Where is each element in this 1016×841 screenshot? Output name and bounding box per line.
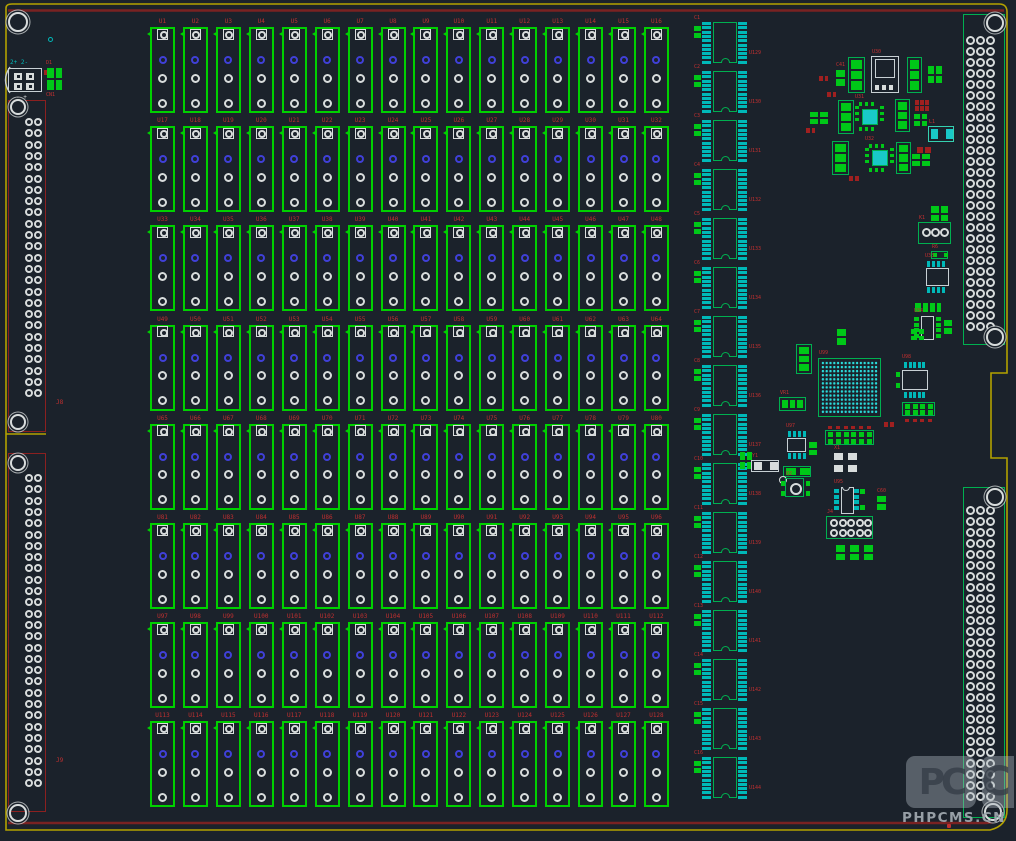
- soic8h-footprint[interactable]: U97: [786, 431, 807, 459]
- relay-coil-pad: [159, 254, 167, 262]
- relay-pad: [191, 297, 200, 306]
- relay-footprint[interactable]: [413, 27, 438, 113]
- sot3v-footprint[interactable]: [838, 100, 854, 134]
- relay-footprint[interactable]: [216, 622, 241, 708]
- relay-pin1-pad: [223, 128, 234, 139]
- relay-footprint[interactable]: [545, 126, 570, 212]
- relay-footprint[interactable]: [282, 622, 307, 708]
- pads2x2-footprint[interactable]: [810, 112, 828, 124]
- relay-refdes: U92: [519, 514, 530, 521]
- pad: [828, 439, 833, 444]
- relay-refdes: U17: [157, 117, 168, 124]
- pad: [925, 147, 931, 153]
- relay-footprint[interactable]: [611, 325, 636, 411]
- relay-pad: [586, 793, 595, 802]
- relay-pin1-pad: [157, 525, 168, 536]
- pad: [896, 383, 900, 388]
- relay-footprint[interactable]: [479, 721, 504, 807]
- relay-footprint[interactable]: [150, 225, 175, 311]
- qfp-footprint[interactable]: U98: [902, 362, 928, 398]
- ic-footprint[interactable]: C14U142: [694, 659, 764, 700]
- relay-footprint[interactable]: [249, 126, 274, 212]
- relay-pad: [652, 570, 661, 579]
- relay-footprint[interactable]: [545, 622, 570, 708]
- relay-footprint[interactable]: [479, 325, 504, 411]
- relay-footprint[interactable]: [150, 523, 175, 609]
- pad: [837, 338, 846, 345]
- relay-footprint[interactable]: [348, 225, 373, 311]
- relay-footprint[interactable]: [413, 225, 438, 311]
- pad: [837, 329, 846, 336]
- ic-pin: [702, 325, 711, 328]
- pads2x2-footprint[interactable]: [928, 66, 942, 83]
- ic-footprint[interactable]: C7U135: [694, 316, 764, 357]
- red2h-footprint[interactable]: [917, 147, 931, 153]
- pads2x2-footprint[interactable]: [911, 329, 924, 340]
- relay-footprint[interactable]: [644, 523, 669, 609]
- relay-footprint[interactable]: [644, 721, 669, 807]
- relay-pad: [421, 173, 430, 182]
- relay-footprint[interactable]: [446, 225, 471, 311]
- relay-footprint[interactable]: [183, 225, 208, 311]
- relay-coil-pad: [356, 552, 364, 560]
- relay-footprint[interactable]: [479, 622, 504, 708]
- capacitor-pad: [694, 271, 701, 276]
- pads2v-footprint[interactable]: [809, 442, 817, 455]
- ic-pin: [702, 382, 711, 385]
- mounting-hole: [986, 328, 1004, 346]
- relay-footprint[interactable]: [150, 622, 175, 708]
- red2h-footprint[interactable]: [827, 92, 836, 97]
- relay-pad: [586, 297, 595, 306]
- relay-footprint[interactable]: [512, 721, 537, 807]
- relay-footprint[interactable]: [249, 27, 274, 113]
- relay-footprint[interactable]: [249, 721, 274, 807]
- ic-footprint[interactable]: C12U140: [694, 561, 764, 602]
- relay-footprint[interactable]: [249, 424, 274, 510]
- relay-pad: [421, 371, 430, 380]
- ic-pin: [738, 110, 747, 113]
- relay-refdes: U38: [322, 216, 333, 223]
- relay-footprint[interactable]: [578, 27, 603, 113]
- conn3c-footprint[interactable]: K1: [918, 222, 951, 244]
- relay-footprint[interactable]: [578, 622, 603, 708]
- relay-footprint[interactable]: [446, 523, 471, 609]
- ic-pin: [738, 632, 747, 635]
- relay-pad: [356, 198, 365, 207]
- relay-footprint[interactable]: [644, 424, 669, 510]
- relay-footprint[interactable]: [183, 325, 208, 411]
- relay-pad: [586, 198, 595, 207]
- relay-refdes: U117: [287, 712, 301, 719]
- ic-notch: [721, 597, 730, 602]
- pad: [898, 121, 907, 129]
- relay-coil-pad: [455, 651, 463, 659]
- pads2v-footprint[interactable]: [850, 545, 859, 560]
- relay-footprint[interactable]: [479, 27, 504, 113]
- relay-footprint[interactable]: [545, 721, 570, 807]
- relay-footprint[interactable]: [183, 424, 208, 510]
- relay-footprint[interactable]: [545, 225, 570, 311]
- relay-footprint[interactable]: [183, 721, 208, 807]
- relay-footprint[interactable]: [282, 721, 307, 807]
- relay-footprint[interactable]: [381, 126, 406, 212]
- relay-footprint[interactable]: [348, 424, 373, 510]
- soic8gv-footprint[interactable]: U95: [834, 487, 865, 514]
- ic-pin: [702, 182, 711, 185]
- relay-footprint[interactable]: [216, 27, 241, 113]
- sot3v-footprint[interactable]: [907, 57, 922, 93]
- relay-footprint[interactable]: [183, 622, 208, 708]
- relay-footprint[interactable]: [381, 622, 406, 708]
- relay-pad: [389, 669, 398, 678]
- capacitor-pad: [694, 75, 701, 80]
- relay-footprint[interactable]: [315, 126, 340, 212]
- dpak-footprint[interactable]: U30: [871, 56, 899, 93]
- relay-footprint[interactable]: [381, 721, 406, 807]
- relay-footprint[interactable]: [512, 424, 537, 510]
- relay-footprint[interactable]: [446, 325, 471, 411]
- relay-footprint[interactable]: [216, 325, 241, 411]
- relay-footprint[interactable]: [216, 721, 241, 807]
- relay-pin1-hole: [324, 229, 332, 237]
- relay-footprint[interactable]: [545, 325, 570, 411]
- red2h-footprint[interactable]: [819, 76, 828, 81]
- ic-footprint[interactable]: C6U134: [694, 267, 764, 308]
- relay-pin1-pad: [585, 29, 596, 40]
- relay-pin1-hole: [489, 428, 497, 436]
- pad: [928, 76, 934, 84]
- relay-footprint[interactable]: [578, 126, 603, 212]
- ic-pin: [738, 619, 747, 622]
- relay-pad: [652, 595, 661, 604]
- ic-footprint[interactable]: C9U137: [694, 414, 764, 455]
- relay-footprint[interactable]: [282, 27, 307, 113]
- relay-footprint[interactable]: [315, 225, 340, 311]
- relay-footprint[interactable]: [216, 523, 241, 609]
- ic-footprint[interactable]: C5U133: [694, 218, 764, 259]
- ic-pin: [702, 101, 711, 104]
- relay-footprint[interactable]: [381, 523, 406, 609]
- ic-footprint[interactable]: C16U144: [694, 757, 764, 798]
- relay-footprint[interactable]: [249, 325, 274, 411]
- relay-footprint[interactable]: [183, 126, 208, 212]
- relay-footprint[interactable]: [282, 523, 307, 609]
- red3x2-footprint[interactable]: [915, 100, 930, 112]
- relay-coil-pad: [488, 56, 496, 64]
- relay-footprint[interactable]: [578, 325, 603, 411]
- pads2x2-footprint[interactable]: [912, 154, 930, 166]
- relay-footprint[interactable]: [545, 424, 570, 510]
- sot3v-footprint[interactable]: [895, 99, 910, 132]
- relay-pad: [520, 793, 529, 802]
- relay-footprint[interactable]: [413, 721, 438, 807]
- relay-footprint[interactable]: [150, 27, 175, 113]
- relay-pin1-hole: [653, 329, 661, 337]
- ic-footprint[interactable]: C8U136: [694, 365, 764, 406]
- relay-pad: [586, 570, 595, 579]
- relay-pin1-hole: [192, 725, 200, 733]
- relay-pin1-pad: [157, 723, 168, 734]
- ic-pin: [702, 546, 711, 549]
- relay-pin1-hole: [456, 229, 464, 237]
- relay-footprint[interactable]: [315, 27, 340, 113]
- relay-footprint[interactable]: [578, 721, 603, 807]
- relay-footprint[interactable]: [282, 225, 307, 311]
- relay-footprint[interactable]: [183, 523, 208, 609]
- relay-pad: [389, 768, 398, 777]
- ic-pin: [702, 350, 711, 353]
- relay-footprint[interactable]: [348, 27, 373, 113]
- ic-refdes: U129: [749, 50, 761, 56]
- relay-footprint[interactable]: [348, 325, 373, 411]
- relay-footprint[interactable]: [216, 126, 241, 212]
- ic-pin: [738, 676, 747, 679]
- relay-footprint[interactable]: [413, 325, 438, 411]
- relay-footprint[interactable]: [446, 126, 471, 212]
- ic-pin: [738, 387, 747, 390]
- relay-pin1-hole: [555, 31, 563, 39]
- relay-footprint[interactable]: [150, 126, 175, 212]
- relay-footprint[interactable]: [611, 27, 636, 113]
- ic-pin: [738, 672, 747, 675]
- pads2v-footprint[interactable]: [837, 329, 846, 345]
- pads2v-footprint[interactable]: [944, 320, 952, 334]
- ic-footprint[interactable]: C1U129: [694, 22, 764, 63]
- relay-coil-pad: [455, 254, 463, 262]
- relay-footprint[interactable]: [611, 424, 636, 510]
- relay-refdes: U104: [386, 613, 400, 620]
- ic-pin: [702, 427, 711, 430]
- relay-pin1-hole: [522, 229, 530, 237]
- relay-footprint[interactable]: [315, 523, 340, 609]
- ic-footprint[interactable]: C4U132: [694, 169, 764, 210]
- ic-pin: [702, 623, 711, 626]
- relay-footprint[interactable]: [644, 27, 669, 113]
- relay-footprint[interactable]: [348, 622, 373, 708]
- mounting-hole: [10, 455, 26, 471]
- relay-footprint[interactable]: [216, 225, 241, 311]
- edge-connector-left[interactable]: [8, 100, 46, 432]
- relay-coil-pad: [159, 552, 167, 560]
- relay-footprint[interactable]: [611, 126, 636, 212]
- osc4-footprint[interactable]: X1: [834, 453, 858, 473]
- relay-footprint[interactable]: [611, 721, 636, 807]
- relay-footprint[interactable]: [644, 225, 669, 311]
- relay-footprint[interactable]: [644, 622, 669, 708]
- relay-footprint[interactable]: [282, 325, 307, 411]
- pad: [944, 253, 948, 257]
- relay-coil-pad: [224, 651, 232, 659]
- relay-refdes: U65: [157, 415, 168, 422]
- relay-footprint[interactable]: [512, 126, 537, 212]
- relay-footprint[interactable]: [578, 225, 603, 311]
- relay-footprint[interactable]: [446, 27, 471, 113]
- ic-footprint[interactable]: C11U139: [694, 512, 764, 553]
- relay-refdes: U64: [651, 316, 662, 323]
- relay-footprint[interactable]: [446, 622, 471, 708]
- ic-pin: [702, 583, 711, 586]
- pads2v-footprint[interactable]: C41: [836, 70, 845, 86]
- sot3v-footprint[interactable]: [848, 57, 865, 93]
- pad: [836, 439, 841, 444]
- relay-footprint[interactable]: [315, 622, 340, 708]
- relay-footprint[interactable]: [446, 721, 471, 807]
- soic8h-footprint[interactable]: U33: [925, 261, 950, 293]
- relay-pin1-hole: [324, 725, 332, 733]
- pad-hole: [847, 519, 855, 527]
- pads2v-footprint[interactable]: [836, 545, 845, 560]
- relay-footprint[interactable]: [479, 523, 504, 609]
- aux-connector[interactable]: [47, 68, 62, 90]
- red2h-footprint[interactable]: [806, 128, 815, 133]
- relay-footprint[interactable]: [512, 225, 537, 311]
- pads2h-footprint[interactable]: [930, 303, 941, 312]
- relay-footprint[interactable]: [479, 424, 504, 510]
- relay-pin1-pad: [585, 624, 596, 635]
- ic-pin: [702, 783, 711, 786]
- relay-footprint[interactable]: [413, 523, 438, 609]
- xtal2-footprint[interactable]: Y1: [751, 460, 779, 472]
- relay-footprint[interactable]: [315, 325, 340, 411]
- relay-coil-pad: [356, 453, 364, 461]
- relay-footprint[interactable]: [150, 721, 175, 807]
- relay-pad: [158, 669, 167, 678]
- relay-footprint[interactable]: [381, 325, 406, 411]
- edge-connector-left[interactable]: [8, 453, 46, 812]
- relay-footprint[interactable]: [512, 523, 537, 609]
- hdr2x6-footprint[interactable]: [825, 430, 874, 445]
- ic-refdes: U143: [749, 736, 761, 742]
- relay-footprint[interactable]: [183, 27, 208, 113]
- edge-connector-right[interactable]: [963, 14, 1005, 345]
- relay-pad: [586, 396, 595, 405]
- pads2v-footprint[interactable]: C60: [877, 496, 886, 510]
- circ4-footprint[interactable]: Q2: [785, 478, 804, 497]
- sot3v-footprint[interactable]: [896, 142, 911, 174]
- ic-footprint[interactable]: C13U141: [694, 610, 764, 651]
- relay-footprint[interactable]: [644, 126, 669, 212]
- relay-footprint[interactable]: [348, 126, 373, 212]
- pad: [806, 128, 810, 133]
- sot3v-footprint[interactable]: [796, 344, 812, 374]
- ic-pin: [738, 22, 747, 25]
- relay-footprint[interactable]: [282, 424, 307, 510]
- ic-pin: [738, 404, 747, 407]
- relay-footprint[interactable]: [413, 622, 438, 708]
- ic-pin: [738, 382, 747, 385]
- pads2x2-footprint[interactable]: [931, 206, 948, 221]
- ic-footprint[interactable]: C2U130: [694, 71, 764, 112]
- relay-pin1-pad: [289, 624, 300, 635]
- ic-footprint[interactable]: C3U131: [694, 120, 764, 161]
- relay-coil-pad: [290, 254, 298, 262]
- hdr2x4-footprint[interactable]: [902, 402, 935, 416]
- relay-refdes: U110: [583, 613, 597, 620]
- relay-pad: [389, 272, 398, 281]
- chip2-footprint[interactable]: L1: [928, 126, 954, 142]
- relay-pin1-pad: [552, 425, 563, 436]
- relay-pad: [652, 198, 661, 207]
- relay-pad: [224, 768, 233, 777]
- relay-pin1-pad: [420, 425, 431, 436]
- relay-footprint[interactable]: [545, 27, 570, 113]
- relay-footprint[interactable]: [611, 523, 636, 609]
- red2h-footprint[interactable]: [849, 176, 859, 181]
- relay-footprint[interactable]: [578, 424, 603, 510]
- relay-footprint[interactable]: [545, 523, 570, 609]
- relay-footprint[interactable]: [512, 325, 537, 411]
- ic-pin: [738, 267, 747, 270]
- relay-footprint[interactable]: [150, 325, 175, 411]
- bga-footprint[interactable]: U99: [818, 358, 881, 417]
- pcb-canvas[interactable]: U1U2U3U4U5U6U7U8U9U10U11U12U13U14U15U16U…: [0, 0, 1016, 841]
- qfn-footprint[interactable]: U32: [865, 144, 894, 172]
- relay-footprint[interactable]: [381, 424, 406, 510]
- ic-footprint[interactable]: C15U143: [694, 708, 764, 749]
- relay-footprint[interactable]: [348, 721, 373, 807]
- relay-pin1-hole: [588, 31, 596, 39]
- relay-footprint[interactable]: [479, 225, 504, 311]
- pad-hole: [931, 228, 940, 237]
- relay-footprint[interactable]: [249, 225, 274, 311]
- relay-footprint[interactable]: [282, 126, 307, 212]
- pad: [946, 129, 953, 139]
- capacitor-refdes: C15: [694, 701, 703, 707]
- qfn-footprint[interactable]: U31: [855, 102, 884, 131]
- relay-footprint[interactable]: [611, 225, 636, 311]
- relay-footprint[interactable]: [578, 523, 603, 609]
- relay-footprint[interactable]: [413, 126, 438, 212]
- power-connector-j1[interactable]: [8, 68, 42, 92]
- relay-footprint[interactable]: [249, 622, 274, 708]
- relay-footprint[interactable]: [446, 424, 471, 510]
- pads2x2-footprint[interactable]: [914, 114, 927, 126]
- relay-footprint[interactable]: [479, 126, 504, 212]
- pad: [941, 206, 949, 213]
- relay-footprint[interactable]: [315, 424, 340, 510]
- sot3v-footprint[interactable]: [832, 141, 849, 175]
- relay-pad: [454, 595, 463, 604]
- capacitor-pad: [694, 327, 701, 332]
- ic-pin: [702, 516, 711, 519]
- sot3h-footprint[interactable]: VR1: [779, 397, 806, 411]
- red2h-footprint[interactable]: [884, 422, 894, 427]
- relay-footprint[interactable]: [216, 424, 241, 510]
- edge-connector-right[interactable]: [963, 487, 1005, 818]
- relay-pad: [520, 396, 529, 405]
- hdr2x5-footprint[interactable]: J4: [826, 516, 873, 539]
- relay-pad: [290, 570, 299, 579]
- relay-footprint[interactable]: [381, 225, 406, 311]
- relay-footprint[interactable]: [512, 27, 537, 113]
- tick: [859, 426, 863, 429]
- capacitor-pad: [694, 572, 701, 577]
- pads2v-footprint[interactable]: [864, 545, 873, 560]
- relay-footprint[interactable]: [381, 27, 406, 113]
- relay-footprint[interactable]: [644, 325, 669, 411]
- relay-footprint[interactable]: [150, 424, 175, 510]
- relay-footprint[interactable]: [315, 721, 340, 807]
- relay-footprint[interactable]: [249, 523, 274, 609]
- relay-footprint[interactable]: [348, 523, 373, 609]
- relay-refdes: U90: [453, 514, 464, 521]
- relay-coil-pad: [422, 651, 430, 659]
- relay-footprint[interactable]: [413, 424, 438, 510]
- relay-pad: [389, 793, 398, 802]
- relay-footprint[interactable]: [512, 622, 537, 708]
- relay-footprint[interactable]: [611, 622, 636, 708]
